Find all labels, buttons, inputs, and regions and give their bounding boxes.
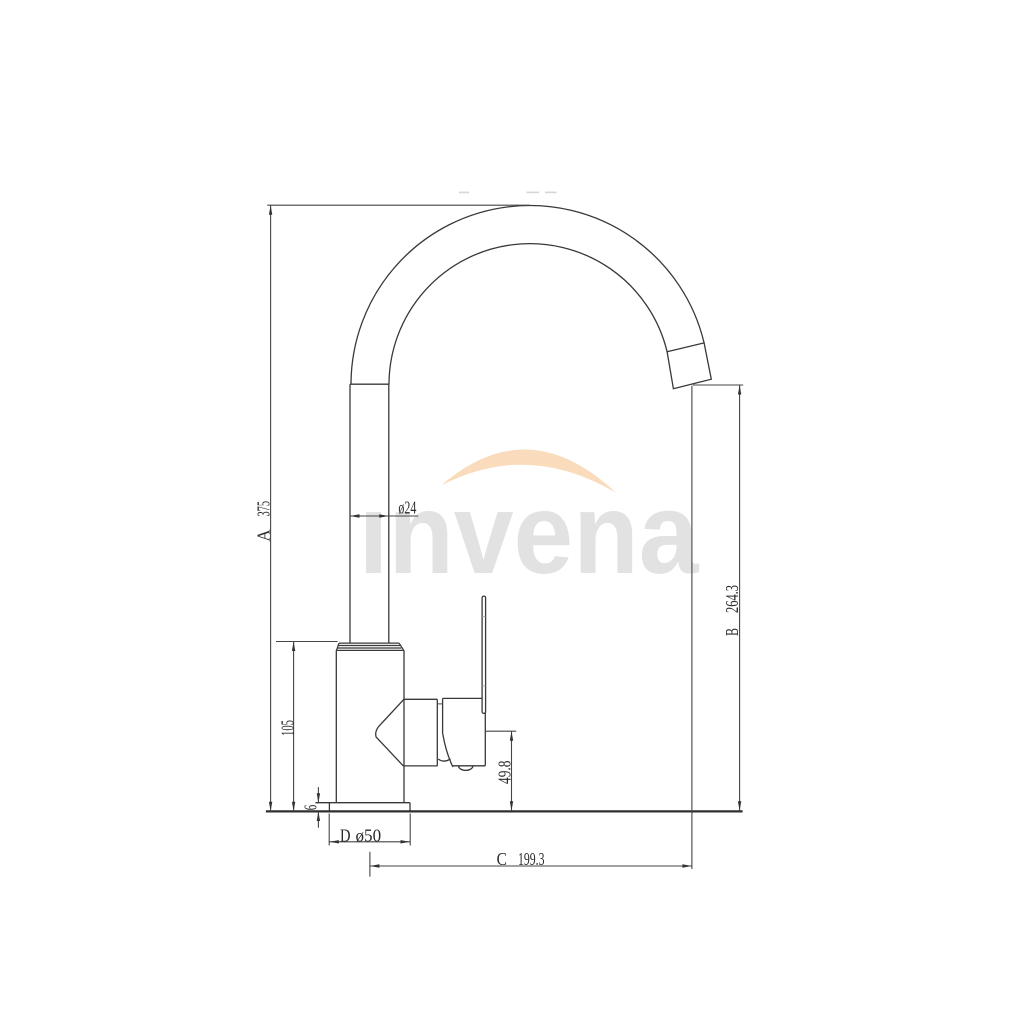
svg-text:ø24: ø24 — [398, 498, 416, 518]
svg-text:199.3: 199.3 — [518, 849, 545, 869]
svg-text:6: 6 — [301, 805, 321, 811]
svg-text:375: 375 — [254, 501, 274, 517]
svg-text:A: A — [254, 530, 274, 542]
svg-text:C: C — [497, 849, 507, 869]
svg-text:105: 105 — [277, 720, 297, 736]
svg-text:264.3: 264.3 — [722, 585, 742, 613]
svg-text:D: D — [340, 826, 351, 846]
svg-text:ø50: ø50 — [356, 826, 382, 846]
svg-text:B: B — [722, 628, 742, 636]
svg-text:49.8: 49.8 — [495, 761, 515, 785]
svg-text:ınvena: ınvena — [359, 470, 700, 598]
